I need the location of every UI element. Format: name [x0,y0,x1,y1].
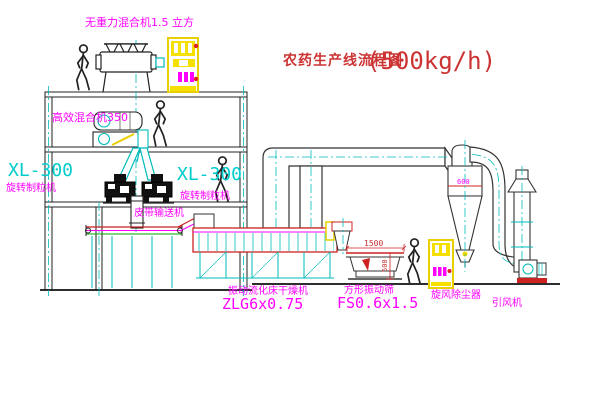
vibrating-sieve [345,244,406,279]
label-high-efficiency-mixer: 高效混合机350 [52,110,128,124]
label-dryer-model: ZLG6x0.75 [222,295,303,313]
cabinet-knob [433,267,437,276]
label-fan: 引风机 [492,296,522,309]
indicator-light [448,269,452,273]
conveyor-legs [92,236,172,288]
control-cabinet-top [168,38,198,92]
cabinet-knob [443,267,447,276]
control-cabinet-ground [429,240,453,288]
worker-figure [154,101,166,146]
fan-motor [537,263,546,275]
label-cyclone: 旋风除尘器 [431,288,481,301]
induced-draft-fan [517,260,547,283]
label-granulator-left-name: 旋转制粒机 [6,181,56,194]
diagram-title-capacity: (500kg/h) [366,47,496,75]
fan-base [517,278,547,283]
worker-figure [77,45,89,90]
worker-figure [408,239,420,284]
exhaust-duct [263,148,452,228]
indicator-light [194,77,198,81]
cabinet-knob [190,72,194,82]
label-granulator-right-name: 旋转制粒机 [180,189,230,202]
granulator-right [140,174,174,203]
label-sieve-model: FS0.6x1.5 [337,294,418,312]
label-granulator-left-model: XL-300 [8,160,73,181]
cabinet-knob [438,267,442,276]
diagram-canvas: 无重力混合机1.5 立方 农药生产线流程图 (500kg/h) 高效混合机350… [0,0,600,403]
dimension-text-cyclone: 600 [457,178,470,186]
label-granulator-right-model: XL-300 [177,164,242,185]
cabinet-knob [184,72,188,82]
indicator-light [194,44,198,48]
label-belt-conveyor: 皮带输送机 [134,206,184,219]
label-gravity-free-mixer: 无重力混合机1.5 立方 [85,15,194,29]
process-flow-diagram: 无重力混合机1.5 立方 农药生产线流程图 (500kg/h) 高效混合机350… [0,0,600,403]
mixer-discharge-spout [156,58,164,67]
cabinet-knob [178,72,182,82]
dryer-legs [196,252,334,278]
dimension-text-500: 500 [381,259,389,272]
floor-slab-top [45,92,247,97]
gravity-free-mixer [96,44,164,92]
dimension-text-1500: 1500 [364,239,383,248]
mixer2-discharge [138,130,148,148]
